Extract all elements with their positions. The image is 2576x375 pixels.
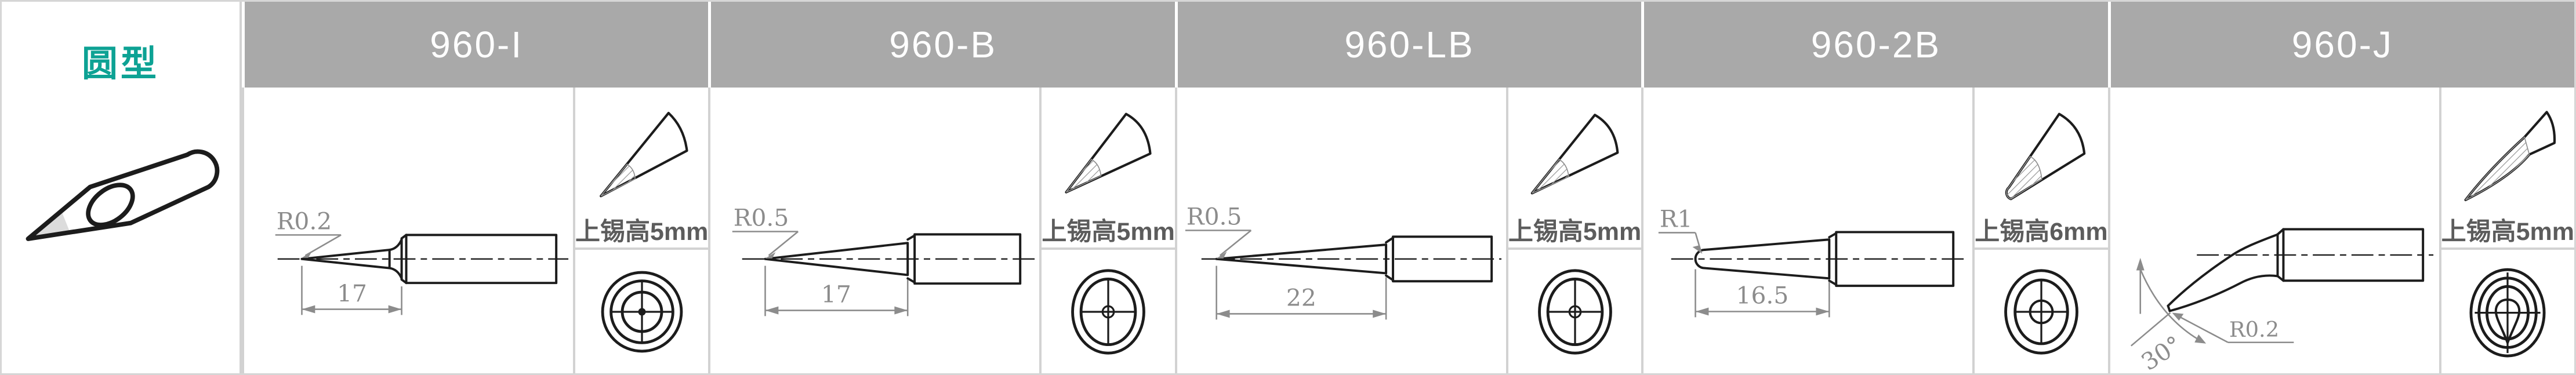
column-header: 960-J <box>2108 2 2574 88</box>
side-view-drawing: R0.2 30° <box>2110 88 2439 373</box>
column-header: 960-2B <box>1641 2 2107 88</box>
cone-3d-view <box>1983 96 2099 212</box>
cone-3d-view <box>2450 96 2566 212</box>
length-dimension: 17 <box>821 281 851 308</box>
column-960-b: 960-B R0.5 17 <box>708 2 1174 373</box>
model-name: 960-2B <box>1811 23 1941 66</box>
column-header: 960-LB <box>1175 2 1641 88</box>
radius-label: R0.2 <box>277 207 332 235</box>
side-view-cell: R0.5 17 <box>708 88 1039 373</box>
radius-label: R0.5 <box>1187 203 1242 231</box>
side-view-cell: R0.5 22 <box>1175 88 1506 373</box>
cross-section-view <box>1521 260 1629 363</box>
tin-height-label: 上锡高5mm <box>1042 212 1174 247</box>
column-header: 960-B <box>708 2 1174 88</box>
column-960-j: 960-J R0.2 <box>2108 2 2574 373</box>
cross-section-view <box>588 260 696 363</box>
length-dimension: 17 <box>337 279 367 307</box>
cross-section-cell <box>1508 250 1641 373</box>
tin-height-label: 上锡高6mm <box>1975 212 2107 247</box>
model-name: 960-I <box>430 23 523 66</box>
model-name: 960-LB <box>1344 23 1474 66</box>
cone-3d-view <box>1050 96 1166 212</box>
cross-section-view <box>1987 260 2095 363</box>
tip-spec-table: 圆型 960-I R0.2 <box>0 0 2576 375</box>
column-header: 960-I <box>242 2 708 88</box>
category-label: 圆型 <box>2 34 240 86</box>
cone-3d-view <box>1517 96 1633 212</box>
side-view-drawing: R1 16.5 <box>1643 88 1972 373</box>
angle-dimension: 30° <box>2136 330 2186 373</box>
radius-label: R1 <box>1660 205 1693 233</box>
tin-height-label: 上锡高5mm <box>1508 212 1641 247</box>
cross-section-view <box>1054 260 1162 363</box>
cross-section-cell <box>2441 250 2574 373</box>
tin-height-cell: 上锡高6mm <box>1975 88 2107 250</box>
radius-label: R0.2 <box>2229 317 2279 342</box>
cone-3d-view <box>584 96 700 212</box>
cross-section-cell <box>1975 250 2107 373</box>
column-960-i: 960-I R0.2 <box>242 2 708 373</box>
length-dimension: 22 <box>1286 284 1316 312</box>
radius-label: R0.5 <box>734 204 789 232</box>
model-name: 960-J <box>2292 23 2393 66</box>
cross-section-cell <box>1042 250 1174 373</box>
side-view-drawing: R0.5 17 <box>710 88 1039 373</box>
round-tip-illustration <box>18 122 221 253</box>
tin-height-cell: 上锡高5mm <box>1042 88 1174 250</box>
length-dimension: 16.5 <box>1736 282 1789 310</box>
side-view-drawing: R0.5 22 <box>1177 88 1506 373</box>
tin-height-cell: 上锡高5mm <box>2441 88 2574 250</box>
tin-height-cell: 上锡高5mm <box>575 88 708 250</box>
tin-height-label: 上锡高5mm <box>575 212 708 247</box>
column-960-lb: 960-LB R0.5 22 <box>1175 2 1641 373</box>
side-view-cell: R0.2 17 <box>242 88 573 373</box>
tin-height-cell: 上锡高5mm <box>1508 88 1641 250</box>
model-name: 960-B <box>889 23 997 66</box>
column-960-2b: 960-2B R1 1 <box>1641 2 2107 373</box>
category-cell: 圆型 <box>2 2 242 373</box>
cross-section-cell <box>575 250 708 373</box>
side-view-drawing: R0.2 17 <box>244 88 573 373</box>
tin-height-label: 上锡高5mm <box>2441 212 2574 247</box>
side-view-cell: R0.2 30° <box>2108 88 2439 373</box>
cross-section-view <box>2454 260 2562 363</box>
side-view-cell: R1 16.5 <box>1641 88 1972 373</box>
